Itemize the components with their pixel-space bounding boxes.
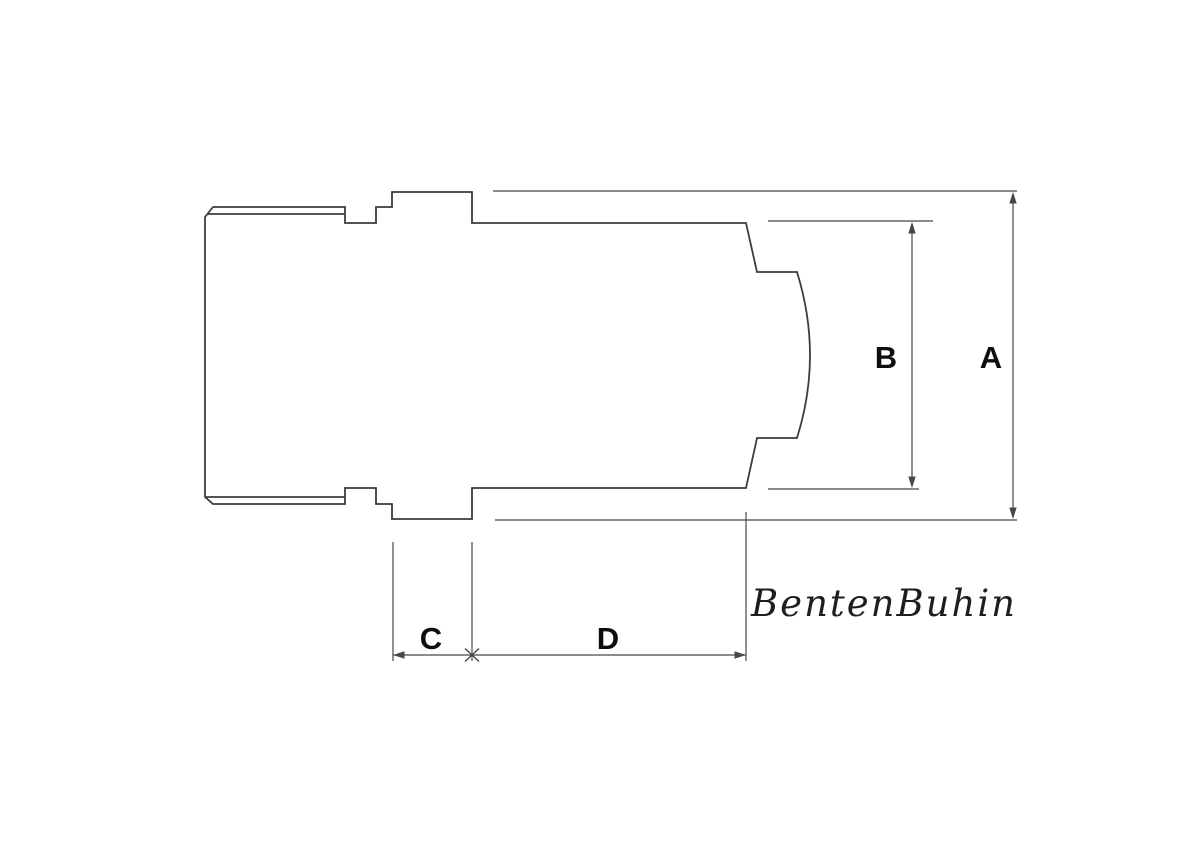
- dim-label-a: A: [980, 340, 1002, 375]
- dim-c-arrow-left-icon: [393, 651, 405, 658]
- dim-label-b: B: [875, 340, 897, 375]
- dim-d-arrow-right-icon: [735, 651, 747, 658]
- dim-label-c: C: [420, 621, 442, 656]
- dim-b-arrow-up-icon: [908, 222, 915, 234]
- part-body-profile: [205, 192, 810, 519]
- dim-a-arrow-down-icon: [1009, 508, 1016, 520]
- brand-logo-text: BentenBuhin: [750, 582, 1017, 625]
- dim-a-arrow-up-icon: [1009, 192, 1016, 204]
- drawing-canvas: A B C D BentenBuhin: [0, 0, 1200, 848]
- dim-label-d: D: [597, 621, 619, 656]
- dim-b-arrow-down-icon: [908, 477, 915, 489]
- part-outline: [205, 192, 810, 519]
- technical-drawing: A B C D BentenBuhin: [0, 0, 1200, 848]
